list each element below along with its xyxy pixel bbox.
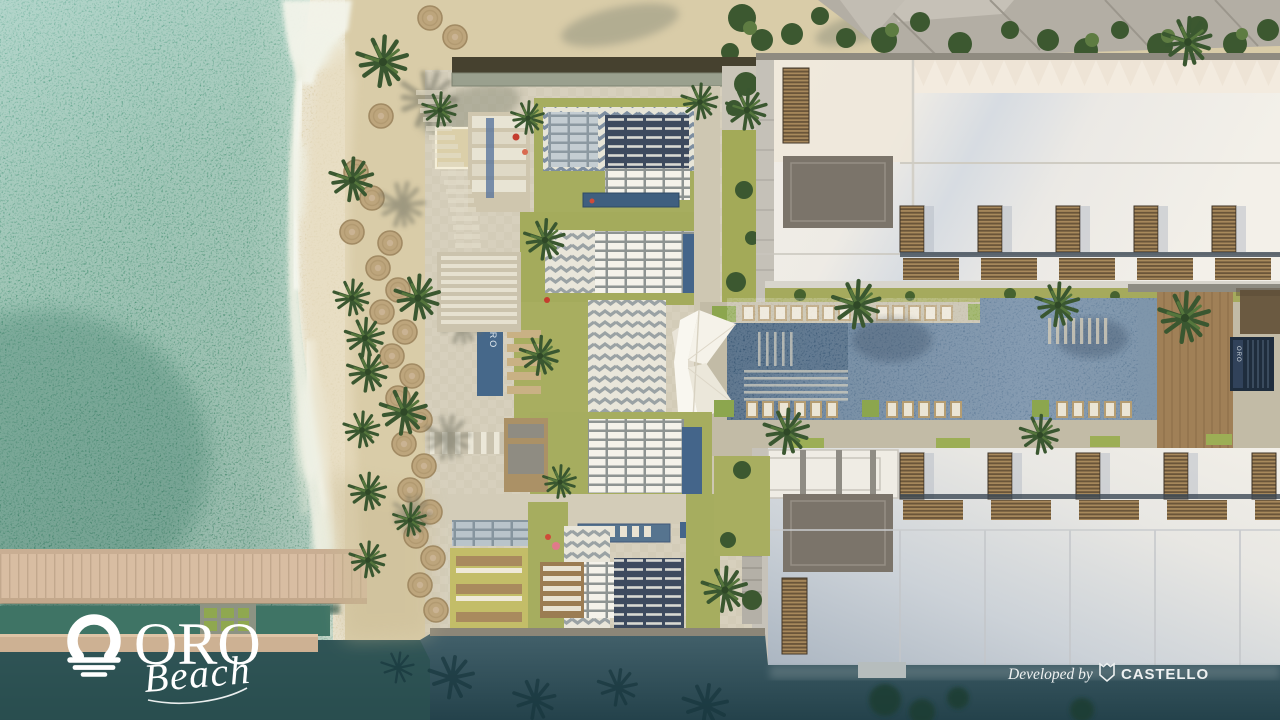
svg-text:ORO: ORO <box>1235 346 1241 363</box>
svg-text:CASTELLO: CASTELLO <box>1121 666 1209 683</box>
svg-text:Developed by: Developed by <box>1007 666 1093 683</box>
